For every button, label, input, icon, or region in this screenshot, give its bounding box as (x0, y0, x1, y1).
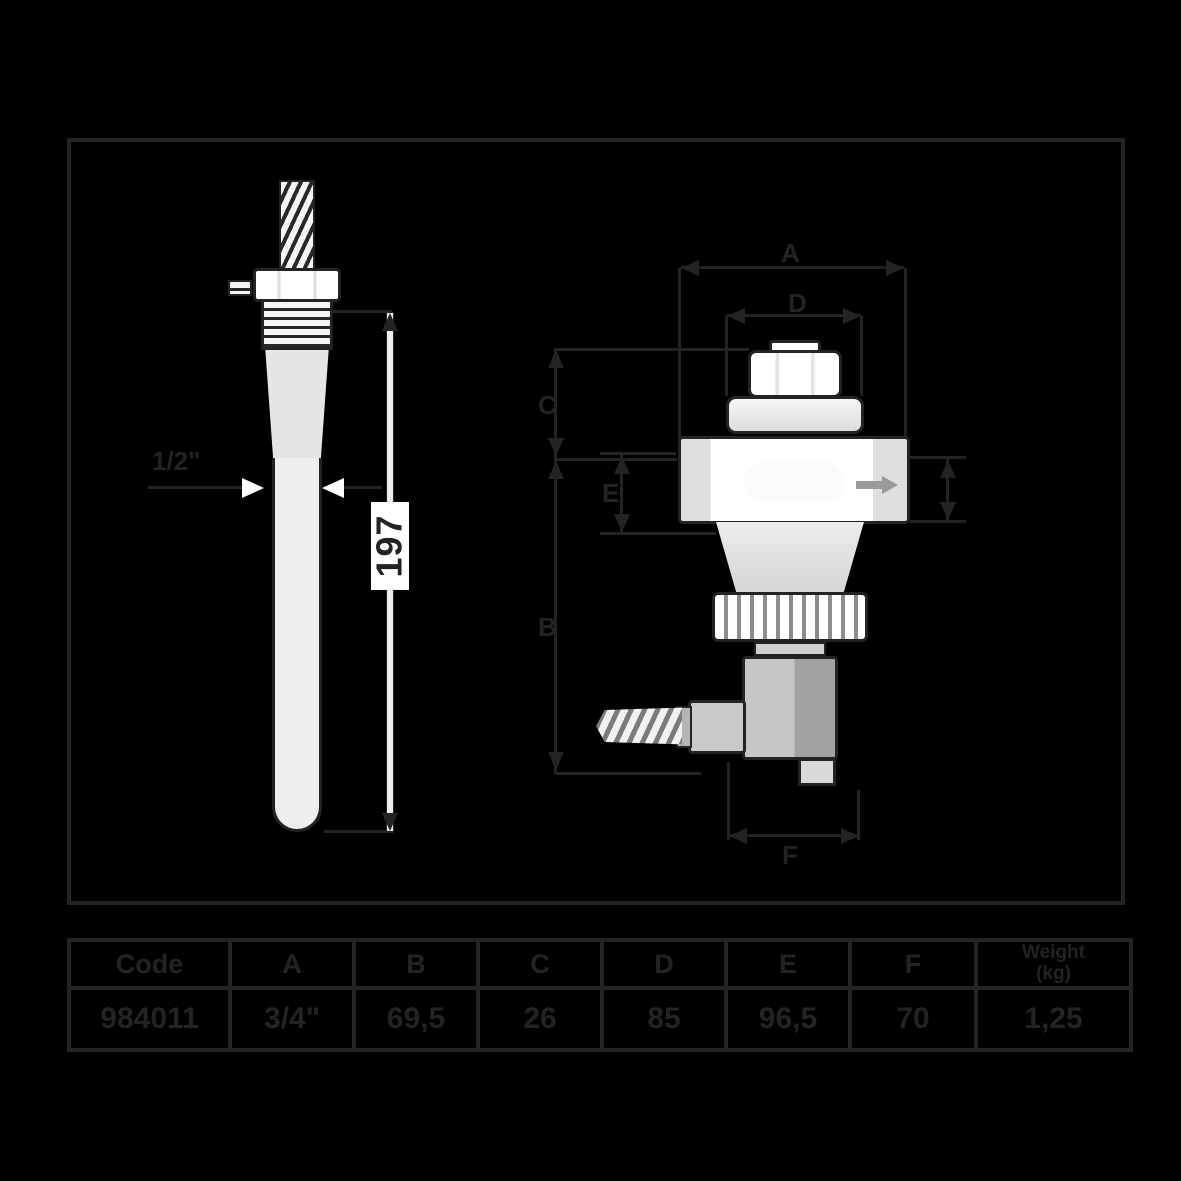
weight-header-line1: Weight (1022, 943, 1085, 964)
table-value-c: 26 (480, 990, 604, 1048)
ext-line-e-bottom (600, 532, 716, 535)
arrowhead-up-icon (940, 460, 956, 478)
well-shoulder (264, 350, 330, 460)
valve-cap-disc (726, 396, 864, 434)
well-probe (272, 458, 322, 832)
ext-line-d-left (725, 316, 728, 396)
table-header-b: B (356, 942, 480, 990)
arrowhead-left-icon (729, 828, 747, 844)
arrowhead-left-icon (727, 308, 745, 324)
weight-header-line2: (kg) (1036, 964, 1071, 985)
ext-line-e-top (600, 452, 676, 455)
valve-body-highlight (744, 462, 844, 502)
capillary-elbow-fitting (688, 700, 746, 754)
well-hex-flange (253, 268, 341, 302)
dim-label-e: E (602, 480, 619, 506)
ext-line-d-right (860, 316, 863, 396)
dimension-table: Code A B C D E F Weight (kg) 984011 3/4"… (67, 938, 1133, 1052)
arrowhead-right-icon (843, 308, 861, 324)
dim-label-b: B (538, 614, 557, 640)
thermostat-bottom-tab (798, 758, 836, 786)
arrowhead-right-icon (841, 828, 859, 844)
table-value-e: 96,5 (728, 990, 852, 1048)
dim-label-c: C (538, 392, 557, 418)
well-threaded-stem (279, 180, 315, 274)
ext-line-b-bottom (557, 772, 701, 775)
flow-arrow-shaft (856, 481, 884, 489)
arrowhead-down-icon (940, 502, 956, 520)
flow-direction-arrow-icon (882, 476, 898, 494)
table-value-d: 85 (604, 990, 728, 1048)
arrowhead-down-icon (614, 514, 630, 532)
actuator-collar (754, 642, 826, 656)
table-header-f: F (852, 942, 978, 990)
dim-label-d: D (788, 290, 807, 316)
arrowhead-down-icon (382, 813, 398, 831)
arrowhead-down-icon (548, 752, 564, 770)
arrowhead-left-icon (681, 260, 699, 276)
arrowhead-right-icon (886, 260, 904, 276)
thermostat-housing (742, 656, 838, 760)
ext-line-a-left (678, 268, 681, 438)
table-value-f: 70 (852, 990, 978, 1048)
well-clip (228, 280, 252, 296)
arrowhead-up-icon (548, 350, 564, 368)
remote-sensor-capillary (596, 706, 682, 746)
table-value-code: 984011 (71, 990, 232, 1048)
arrowhead-left-icon (322, 478, 344, 498)
diameter-label: 1/2" (152, 448, 200, 474)
drawing-frame (67, 138, 1125, 905)
well-thread-section (261, 302, 333, 350)
arrowhead-right-icon (242, 478, 264, 498)
length-label: 197 (369, 514, 411, 577)
table-value-a: 3/4" (232, 990, 356, 1048)
ext-line-a-right (904, 268, 907, 438)
technical-drawing-page: 197 1/2" A D C B E (0, 0, 1181, 1181)
table-header-c: C (480, 942, 604, 990)
table-header-d: D (604, 942, 728, 990)
valve-lower-taper (716, 522, 864, 594)
table-value-b: 69,5 (356, 990, 480, 1048)
arrowhead-down-icon (548, 438, 564, 456)
dim-label-f: F (782, 842, 798, 868)
arrowhead-up-icon (382, 313, 398, 331)
ext-line-right-bottom (910, 520, 966, 523)
table-header-weight: Weight (kg) (978, 942, 1129, 990)
arrowhead-up-icon (614, 456, 630, 474)
dim-label-a: A (781, 240, 800, 266)
ext-line-right-top (910, 456, 966, 459)
valve-ring-nut (712, 592, 868, 642)
valve-hex-bonnet (748, 350, 842, 398)
arrowhead-up-icon (548, 461, 564, 479)
table-value-weight: 1,25 (978, 990, 1129, 1048)
ext-line-c-top (557, 348, 749, 351)
table-header-e: E (728, 942, 852, 990)
length-label-badge: 197 (371, 502, 409, 590)
table-header-a: A (232, 942, 356, 990)
table-header-code: Code (71, 942, 232, 990)
dimension-line-f (729, 834, 859, 837)
